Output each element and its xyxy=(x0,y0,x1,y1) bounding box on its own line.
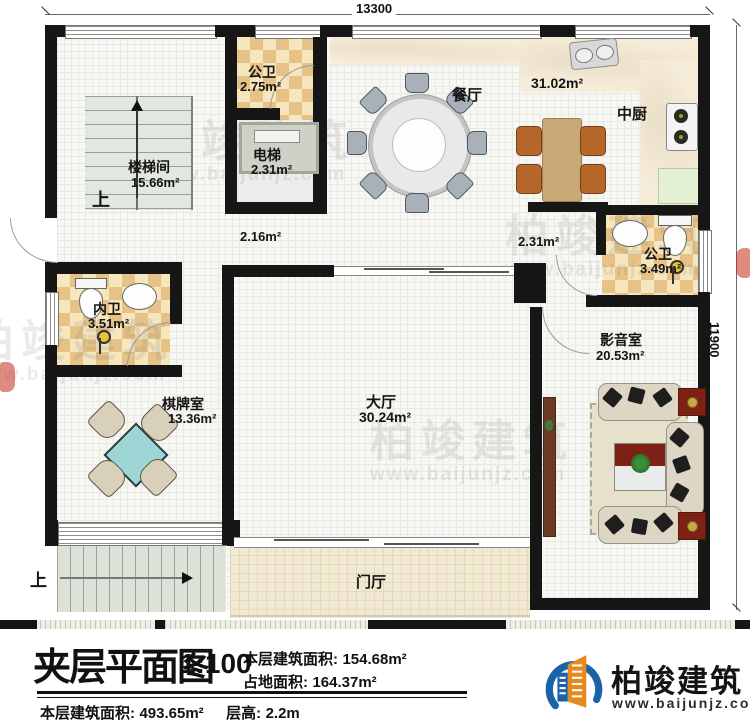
brand-logo-icon xyxy=(545,650,607,718)
sofa-pillow xyxy=(669,427,690,448)
room-label-dining: 餐厅 xyxy=(452,84,482,105)
kitchen-sink xyxy=(569,38,620,71)
sofa-pillow xyxy=(653,512,674,533)
floor-area-row: 本层建筑面积: 154.68m² xyxy=(243,648,407,669)
dining-chair xyxy=(405,73,429,93)
room-area-hall: 30.24m² xyxy=(359,409,411,425)
kitchen-counter xyxy=(658,168,700,204)
sofa-pillow xyxy=(602,387,623,408)
sliding-door-panel xyxy=(274,539,369,541)
wall xyxy=(170,262,182,324)
wall xyxy=(320,25,352,37)
bathroom-sink xyxy=(612,220,648,247)
wall xyxy=(514,263,546,303)
watermark-logo-red xyxy=(736,248,750,278)
brand-logo: 柏竣建筑 www.baijunjz.com xyxy=(545,650,745,720)
passage-area-1: 2.16m² xyxy=(240,229,281,244)
room-area-stairhall: 15.66m² xyxy=(131,175,179,190)
room-area-mahjong: 13.36m² xyxy=(168,411,216,426)
top-dimension-value: 13300 xyxy=(352,1,396,16)
sliding-door-panel xyxy=(384,543,479,545)
kitchen-chair xyxy=(580,126,606,156)
passage-area-2: 2.31m² xyxy=(518,234,559,249)
sofa-pillow xyxy=(627,386,645,404)
wall xyxy=(222,265,234,545)
table-plant xyxy=(631,454,650,473)
right-dimension-line xyxy=(736,25,737,610)
room-area-bath-top: 2.75m² xyxy=(240,79,281,94)
elevator-door-slot xyxy=(254,130,300,143)
watermark-logo-red xyxy=(0,362,15,392)
floor-area-label: 本层建筑面积: xyxy=(243,651,338,668)
wall xyxy=(225,37,237,207)
kitchen-table xyxy=(542,118,582,202)
dining-table-center xyxy=(392,118,446,172)
dining-chair xyxy=(347,131,367,155)
window xyxy=(575,25,692,39)
stair-up-label: 上 xyxy=(92,186,110,212)
window xyxy=(45,292,59,347)
story-height-value: 2.2m xyxy=(266,705,300,722)
side-table xyxy=(678,388,706,416)
sofa-pillow xyxy=(604,514,625,535)
coffee-table xyxy=(614,443,666,491)
kitchen-chair xyxy=(516,164,542,194)
wall xyxy=(530,598,710,610)
window xyxy=(698,230,712,294)
porch-step-line xyxy=(230,615,530,617)
wall xyxy=(57,262,170,274)
side-table-ornament xyxy=(687,521,698,532)
window xyxy=(352,25,542,39)
total-area-value: 493.65m² xyxy=(139,705,203,722)
wall xyxy=(225,202,327,214)
dining-chair xyxy=(467,131,487,155)
window xyxy=(58,522,229,546)
story-height-label: 层高: xyxy=(226,705,261,722)
sliding-door xyxy=(234,537,530,548)
window xyxy=(65,25,217,39)
wall xyxy=(45,25,57,218)
wall xyxy=(225,108,280,120)
sliding-door-panel xyxy=(429,271,509,273)
bathroom-sink xyxy=(122,283,157,310)
stair-up-label: 上 xyxy=(30,566,47,591)
cabinet-plant xyxy=(545,420,553,431)
kitchen-chair xyxy=(516,126,542,156)
stove-burner-dot xyxy=(679,114,683,118)
scale-strip-block xyxy=(735,620,750,629)
wall xyxy=(596,205,606,255)
sofa-pillow xyxy=(672,455,691,474)
wall xyxy=(45,365,182,377)
sofa-pillow xyxy=(652,387,673,408)
land-area-label: 占地面积: xyxy=(243,674,308,691)
total-area-row: 本层建筑面积: 493.65m² 层高: 2.2m xyxy=(40,702,300,723)
wall xyxy=(698,25,710,230)
stove xyxy=(666,103,698,151)
title-rule-thin xyxy=(37,697,467,698)
side-table xyxy=(678,512,706,540)
drawing-scale: 1:100 xyxy=(180,648,252,680)
total-area-label: 本层建筑面积: xyxy=(40,705,135,722)
dining-chair xyxy=(405,193,429,213)
room-area-theater: 20.53m² xyxy=(596,348,644,363)
stair-arrow-stem xyxy=(60,577,185,579)
kitchen-chair xyxy=(580,164,606,194)
wall xyxy=(45,520,58,546)
brand-url: www.baijunjz.com xyxy=(612,695,750,711)
floor-marble-dining xyxy=(330,37,520,65)
room-area-bath-right: 3.49m² xyxy=(640,261,681,276)
sofa-right xyxy=(666,422,704,516)
window xyxy=(255,25,322,39)
room-label-stairhall: 楼梯间 xyxy=(128,157,170,177)
room-label-theater: 影音室 xyxy=(600,330,642,350)
floor-plan-page: 13300 11900 柏竣建筑 www.baijunjz.com 柏竣建筑 w… xyxy=(0,0,750,728)
room-area-dining: 31.02m² xyxy=(531,75,583,91)
room-label-kitchen: 中厨 xyxy=(617,103,647,124)
land-area-row: 占地面积: 164.37m² xyxy=(243,671,377,692)
stair-right-arrow xyxy=(182,572,193,584)
side-table-ornament xyxy=(687,397,698,408)
sliding-door-panel xyxy=(364,268,444,270)
staircase-exterior xyxy=(57,546,225,612)
room-area-bath-inner: 3.51m² xyxy=(88,316,129,331)
scale-strip-block xyxy=(155,620,165,629)
land-area-value: 164.37m² xyxy=(312,674,376,691)
floor-drain-stem xyxy=(99,338,101,354)
wall xyxy=(586,295,710,307)
scale-strip-block xyxy=(0,620,37,629)
scale-strip-block xyxy=(368,620,506,629)
wall xyxy=(530,307,542,610)
room-label-porch: 门厅 xyxy=(356,571,386,592)
sofa-top xyxy=(598,383,682,421)
wall xyxy=(600,205,698,215)
sofa-pillow xyxy=(631,518,648,535)
sofa-pillow xyxy=(669,482,689,502)
sink-basin xyxy=(574,47,593,64)
wall xyxy=(222,265,334,277)
wall xyxy=(45,262,57,292)
room-area-elevator: 2.31m² xyxy=(251,162,292,177)
sink-basin xyxy=(595,44,614,61)
wall xyxy=(540,25,575,37)
floor-area-value: 154.68m² xyxy=(342,651,406,668)
stove-burner-dot xyxy=(679,135,683,139)
sofa-bottom xyxy=(598,506,682,544)
wall xyxy=(215,25,255,37)
tv-cabinet xyxy=(543,397,556,537)
door-arc-entry xyxy=(10,218,58,263)
sliding-door xyxy=(334,266,514,276)
